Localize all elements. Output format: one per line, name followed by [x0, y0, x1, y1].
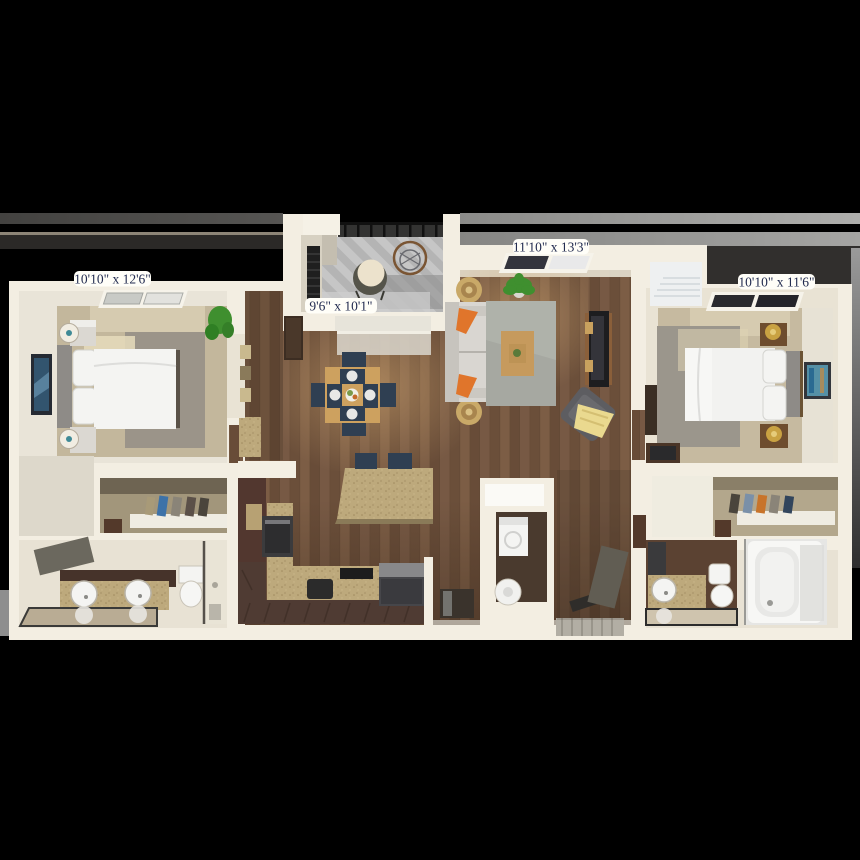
svg-text:10'10" x 12'6": 10'10" x 12'6": [74, 272, 151, 287]
svg-text:11'10" x 13'3": 11'10" x 13'3": [513, 240, 589, 255]
svg-text:9'6" x 10'1": 9'6" x 10'1": [309, 299, 372, 314]
svg-text:10'10" x 11'6": 10'10" x 11'6": [738, 275, 814, 290]
